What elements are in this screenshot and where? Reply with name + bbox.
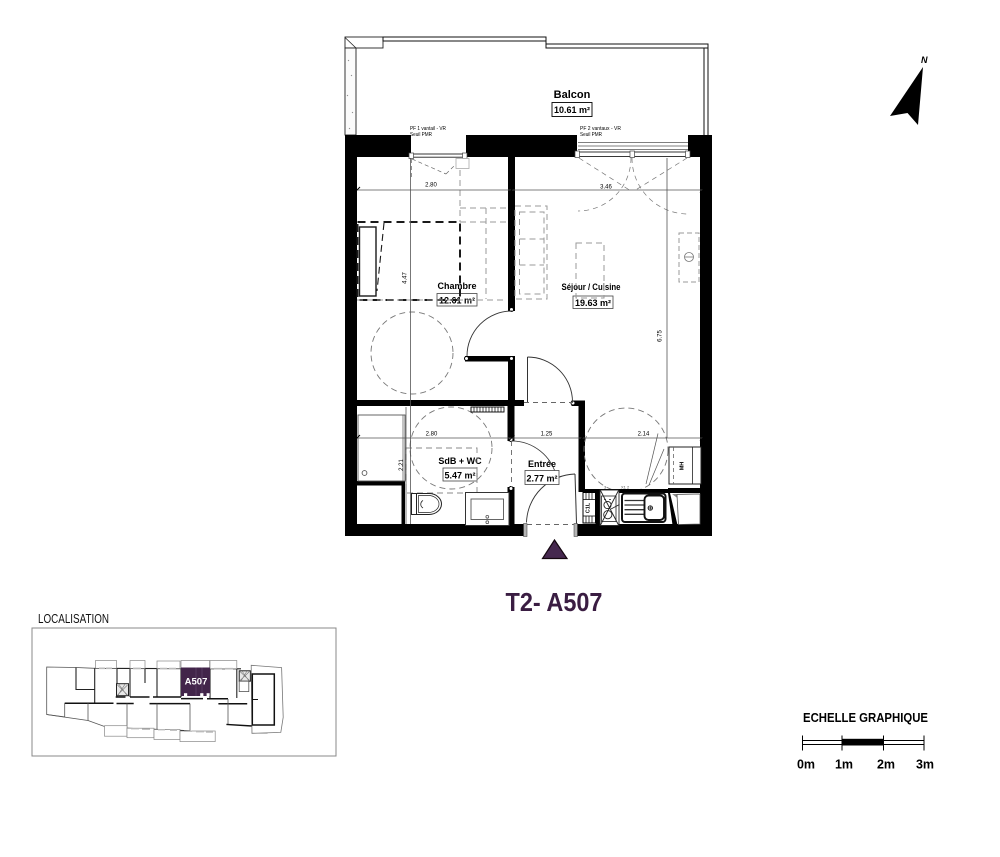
svg-text:3m: 3m [916, 758, 934, 772]
svg-text:Chambre: Chambre [437, 281, 476, 291]
svg-text:Séjour / Cuisine: Séjour / Cuisine [562, 282, 621, 292]
svg-text:2m: 2m [877, 758, 895, 772]
svg-text:Entrée: Entrée [528, 459, 556, 469]
svg-text:3.46: 3.46 [600, 185, 612, 191]
svg-text:0m: 0m [797, 758, 815, 772]
svg-text:1.25: 1.25 [541, 432, 553, 438]
svg-text:A507: A507 [185, 677, 208, 688]
svg-text:2.77 m²: 2.77 m² [526, 474, 557, 484]
svg-text:2.21: 2.21 [399, 459, 405, 471]
svg-text:T2- A507: T2- A507 [506, 587, 603, 617]
svg-text:2.80: 2.80 [426, 432, 438, 438]
svg-text:C1L: C1L [585, 502, 591, 513]
svg-text:N: N [921, 55, 928, 65]
svg-text:Balcon: Balcon [554, 89, 591, 101]
svg-text:LOCALISATION: LOCALISATION [38, 611, 109, 626]
svg-text:X1 2: X1 2 [621, 485, 630, 490]
svg-text:1m: 1m [835, 758, 853, 772]
svg-text:6.75: 6.75 [658, 330, 664, 342]
svg-text:SdB + WC: SdB + WC [438, 456, 482, 466]
svg-text:ECHELLE GRAPHIQUE: ECHELLE GRAPHIQUE [803, 710, 928, 725]
svg-text:4.47: 4.47 [403, 272, 409, 284]
svg-text:2.80: 2.80 [425, 183, 437, 189]
svg-text:MH: MH [680, 462, 686, 471]
svg-text:Seuil PMR: Seuil PMR [410, 132, 432, 138]
svg-text:Seuil PMR: Seuil PMR [580, 132, 602, 138]
svg-text:2.14: 2.14 [638, 432, 650, 438]
svg-text:10.61 m²: 10.61 m² [554, 105, 590, 115]
svg-text:5.47 m²: 5.47 m² [444, 471, 475, 481]
svg-text:19.63 m²: 19.63 m² [575, 298, 611, 308]
